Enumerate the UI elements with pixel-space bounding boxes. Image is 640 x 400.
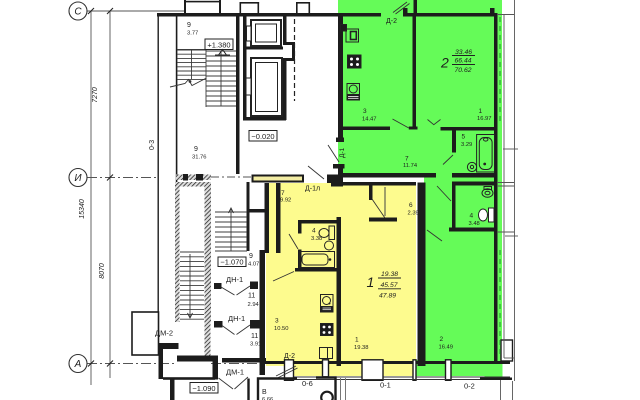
svg-text:0-6: 0-6 [302,379,313,388]
svg-text:19.38: 19.38 [354,345,369,351]
svg-text:8070: 8070 [99,263,106,279]
svg-text:В: В [262,389,267,396]
svg-text:70.62: 70.62 [455,67,472,74]
svg-text:7: 7 [281,190,285,197]
svg-text:19.38: 19.38 [381,271,398,278]
svg-text:66.44: 66.44 [455,58,472,65]
svg-text:16.49: 16.49 [439,345,454,351]
svg-text:47.89: 47.89 [379,293,396,300]
svg-text:3.77: 3.77 [187,31,198,37]
svg-text:11: 11 [248,293,255,300]
svg-text:6: 6 [409,202,413,209]
svg-text:5: 5 [462,134,466,141]
svg-text:1: 1 [479,108,483,115]
svg-text:−1.090: −1.090 [192,384,215,393]
svg-text:9: 9 [187,22,191,29]
svg-text:ДН-1: ДН-1 [228,314,245,323]
svg-text:Д-1л: Д-1л [305,186,320,193]
svg-text:−1.070: −1.070 [220,258,243,267]
svg-text:31.76: 31.76 [192,155,207,161]
svg-text:33.46: 33.46 [455,49,472,56]
svg-text:2: 2 [440,55,449,71]
svg-text:И: И [74,173,82,184]
svg-text:4.07: 4.07 [248,262,259,268]
svg-text:7: 7 [405,156,409,163]
svg-text:С: С [74,7,82,18]
svg-text:7270: 7270 [92,87,99,103]
svg-text:11.74: 11.74 [403,163,418,169]
svg-text:3: 3 [275,318,279,325]
svg-text:3.48: 3.48 [469,221,480,227]
svg-text:0-2: 0-2 [464,381,475,390]
svg-text:9: 9 [194,146,198,153]
svg-text:3: 3 [363,108,367,115]
svg-text:Д-2: Д-2 [284,353,295,360]
svg-text:ДМ-2: ДМ-2 [155,329,173,338]
svg-text:4: 4 [312,228,316,235]
svg-text:11: 11 [251,333,258,340]
svg-text:10.50: 10.50 [274,326,289,332]
svg-text:2.94: 2.94 [248,302,260,308]
svg-text:3.91: 3.91 [250,342,261,348]
svg-text:0-3: 0-3 [149,140,156,150]
svg-text:0-1: 0-1 [380,380,391,389]
svg-text:−0.020: −0.020 [251,132,274,141]
svg-text:ДМ-1: ДМ-1 [226,368,244,377]
svg-text:+1.380: +1.380 [207,41,230,50]
svg-text:3.29: 3.29 [461,142,472,148]
svg-text:1: 1 [355,337,359,344]
svg-text:45.57: 45.57 [381,282,398,289]
svg-text:15340: 15340 [79,199,86,219]
svg-text:16.97: 16.97 [477,116,492,122]
svg-text:1: 1 [367,274,375,290]
svg-text:9.92: 9.92 [280,198,291,204]
svg-text:2.39: 2.39 [408,211,419,217]
svg-text:14.47: 14.47 [362,117,377,123]
svg-text:3.38: 3.38 [311,236,322,242]
svg-text:2: 2 [440,336,444,343]
svg-text:Д-2: Д-2 [386,18,397,25]
svg-text:4: 4 [470,213,474,220]
svg-text:9: 9 [249,253,253,260]
svg-text:А: А [74,359,82,370]
svg-text:Д-1: Д-1 [339,147,346,158]
svg-text:ДН-1: ДН-1 [226,275,243,284]
